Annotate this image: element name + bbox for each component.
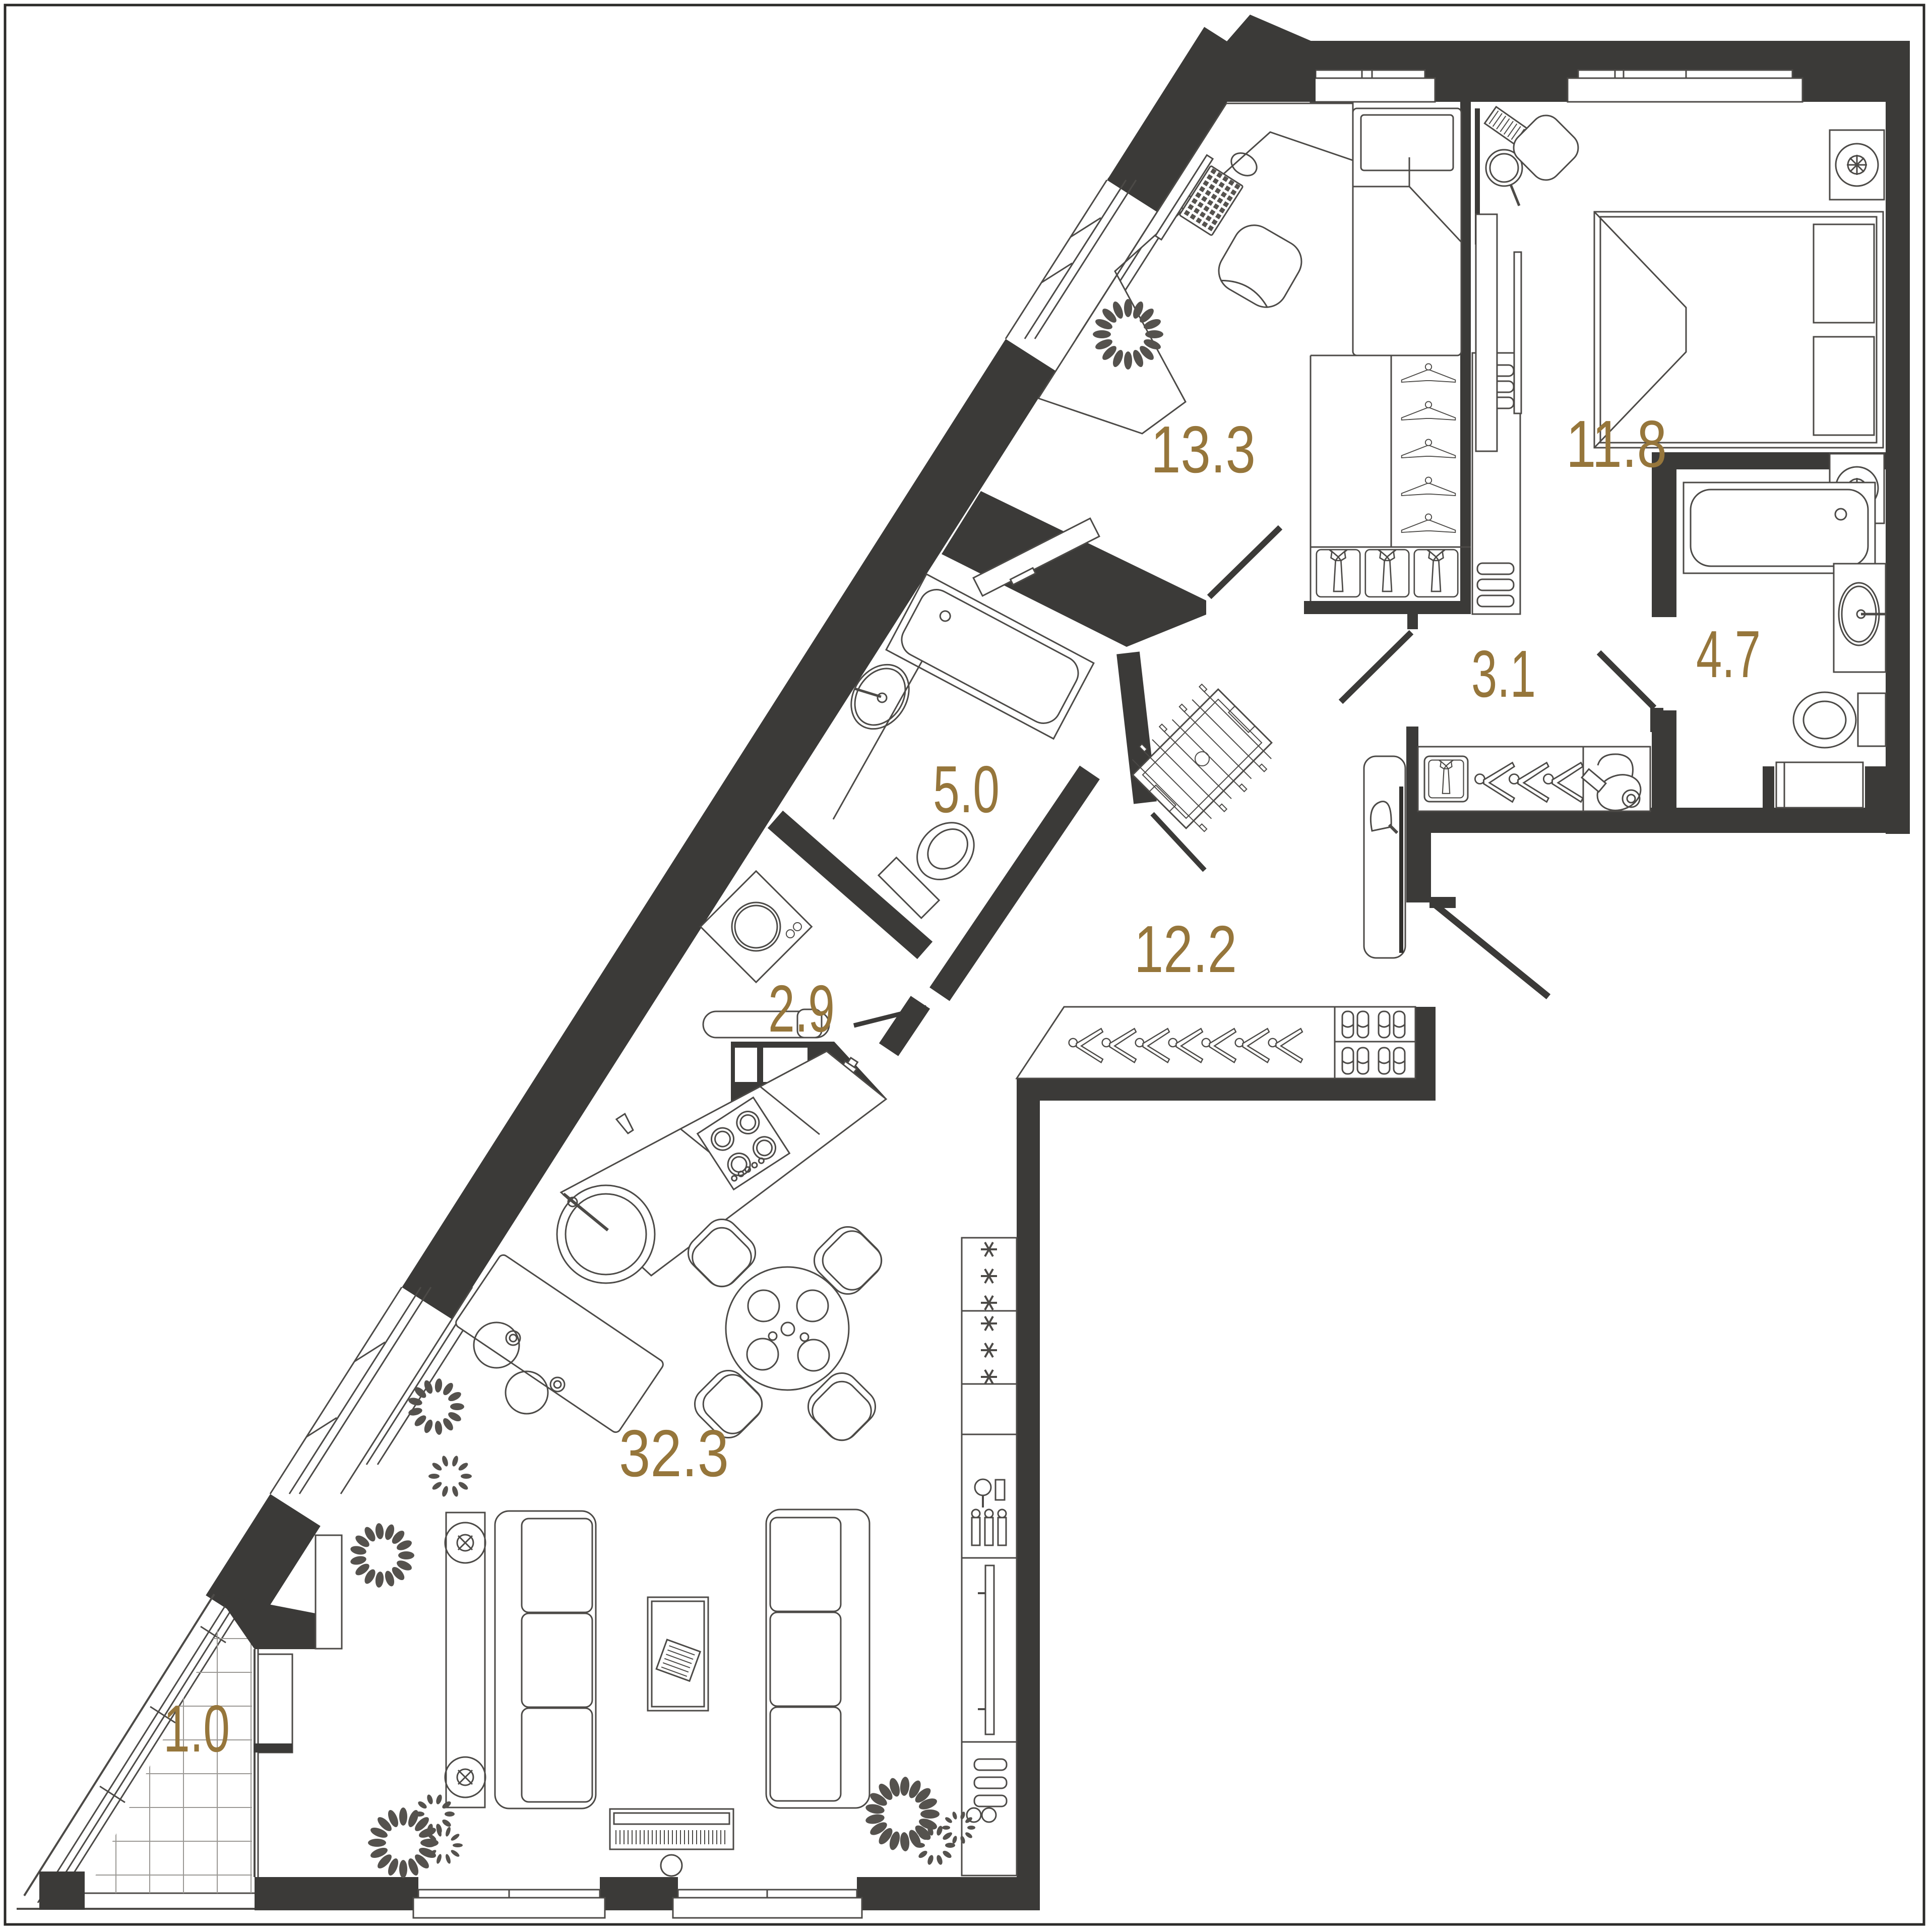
svg-text:13.3: 13.3: [1151, 412, 1256, 487]
svg-text:2.9: 2.9: [768, 972, 835, 1046]
svg-text:12.2: 12.2: [1134, 912, 1237, 986]
svg-text:11.8: 11.8: [1566, 407, 1667, 481]
svg-text:1.0: 1.0: [163, 1692, 230, 1766]
svg-text:3.1: 3.1: [1471, 637, 1536, 711]
svg-text:5.0: 5.0: [933, 752, 1000, 826]
svg-text:32.3: 32.3: [619, 1416, 729, 1490]
svg-text:4.7: 4.7: [1696, 617, 1761, 691]
